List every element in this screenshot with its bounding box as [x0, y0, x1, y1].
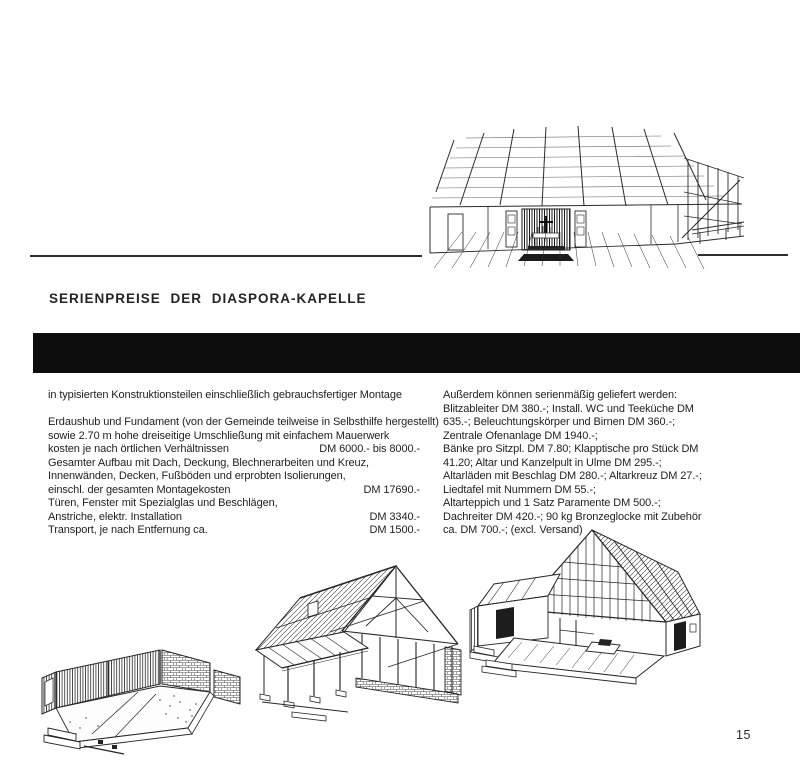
price-line: Türen, Fenster mit Spezialglas und Besch… [48, 497, 420, 511]
accessory-line: Außerdem können serienmäßig geliefert we… [443, 389, 728, 403]
accessory-line: 635.-; Beleuchtungskörper und Birnen DM … [443, 416, 728, 430]
timber-frame-stage-illustration [248, 554, 472, 726]
foundation-stage-illustration [40, 630, 248, 758]
posts-and-masonry-base [356, 634, 461, 703]
line-text: kosten je nach örtlichen Verhältnissen [48, 443, 229, 457]
back-wall-and-altar [430, 204, 742, 253]
line-price [412, 457, 420, 471]
accessory-line: Liedtafel mit Nummern DM 55.-; [443, 484, 728, 498]
line-text: Türen, Fenster mit Spezialglas und Besch… [48, 497, 278, 511]
accessory-line: Blitzableiter DM 380.-; Install. WC und … [443, 403, 728, 417]
horizontal-rule-right [698, 254, 788, 256]
enclosed-shell-stage-illustration [464, 522, 712, 702]
floorboards [430, 232, 744, 269]
price-line: kosten je nach örtlichen VerhältnissenDM… [48, 443, 420, 457]
line-text: einschl. der gesamten Montagekosten [48, 484, 230, 498]
line-price [412, 470, 420, 484]
black-divider-bar [33, 333, 800, 373]
ceiling-rafters [432, 126, 724, 206]
line-text: Transport, je nach Entfernung ca. [48, 524, 208, 538]
line-price: DM 6000.- bis 8000.- [311, 443, 420, 457]
accessory-line: Altarteppich und 1 Satz Paramente DM 500… [443, 497, 728, 511]
price-line: Anstriche, elektr. InstallationDM 3340.- [48, 511, 420, 525]
right-accessories-column: Außerdem können serienmäßig geliefert we… [443, 389, 728, 538]
chapel-interior-illustration [426, 120, 794, 272]
catalog-page: SERIENPREISE DER DIASPORA-KAPELLE in typ… [0, 0, 800, 767]
right-timber-frame [682, 158, 744, 244]
accessory-line: Bänke pro Sitzpl. DM 7.80; Klapptische p… [443, 443, 728, 457]
intro-line: in typisierten Konstruktionsteilen einsc… [48, 389, 420, 403]
line-price: DM 1500.- [362, 524, 420, 538]
line-price [412, 430, 420, 444]
line-price [412, 497, 420, 511]
line-text: Anstriche, elektr. Installation [48, 511, 182, 525]
line-text: Innenwänden, Decken, Fußböden und erprob… [48, 470, 346, 484]
price-line: Innenwänden, Decken, Fußböden und erprob… [48, 470, 420, 484]
line-text: Gesamter Aufbau mit Dach, Deckung, Blech… [48, 457, 369, 471]
line-text: sowie 2.70 m hohe dreiseitige Umschließu… [48, 430, 389, 444]
price-line: Transport, je nach Entfernung ca.DM 1500… [48, 524, 420, 538]
line-price: DM 17690.- [356, 484, 420, 498]
line-text: Erdaushub und Fundament (von der Gemeind… [48, 416, 439, 430]
accessory-line: Altarläden mit Beschlag DM 280.-; Altark… [443, 470, 728, 484]
page-number: 15 [736, 728, 751, 742]
price-line: einschl. der gesamten MontagekostenDM 17… [48, 484, 420, 498]
accessory-line: 41.20; Altar und Kanzelpult in Ulme DM 2… [443, 457, 728, 471]
page-title: SERIENPREISE DER DIASPORA-KAPELLE [49, 292, 367, 306]
accessory-line: Zentrale Ofenanlage DM 1940.-; [443, 430, 728, 444]
price-line: Gesamter Aufbau mit Dach, Deckung, Blech… [48, 457, 420, 471]
price-text-block: in typisierten Konstruktionsteilen einsc… [48, 389, 758, 538]
right-side-wall [666, 614, 700, 656]
line-price: DM 3340.- [362, 511, 420, 525]
price-line: sowie 2.70 m hohe dreiseitige Umschließu… [48, 430, 420, 444]
horizontal-rule-left [30, 255, 422, 257]
left-price-column: in typisierten Konstruktionsteilen einsc… [48, 389, 420, 538]
price-line: Erdaushub und Fundament (von der Gemeind… [48, 416, 420, 430]
